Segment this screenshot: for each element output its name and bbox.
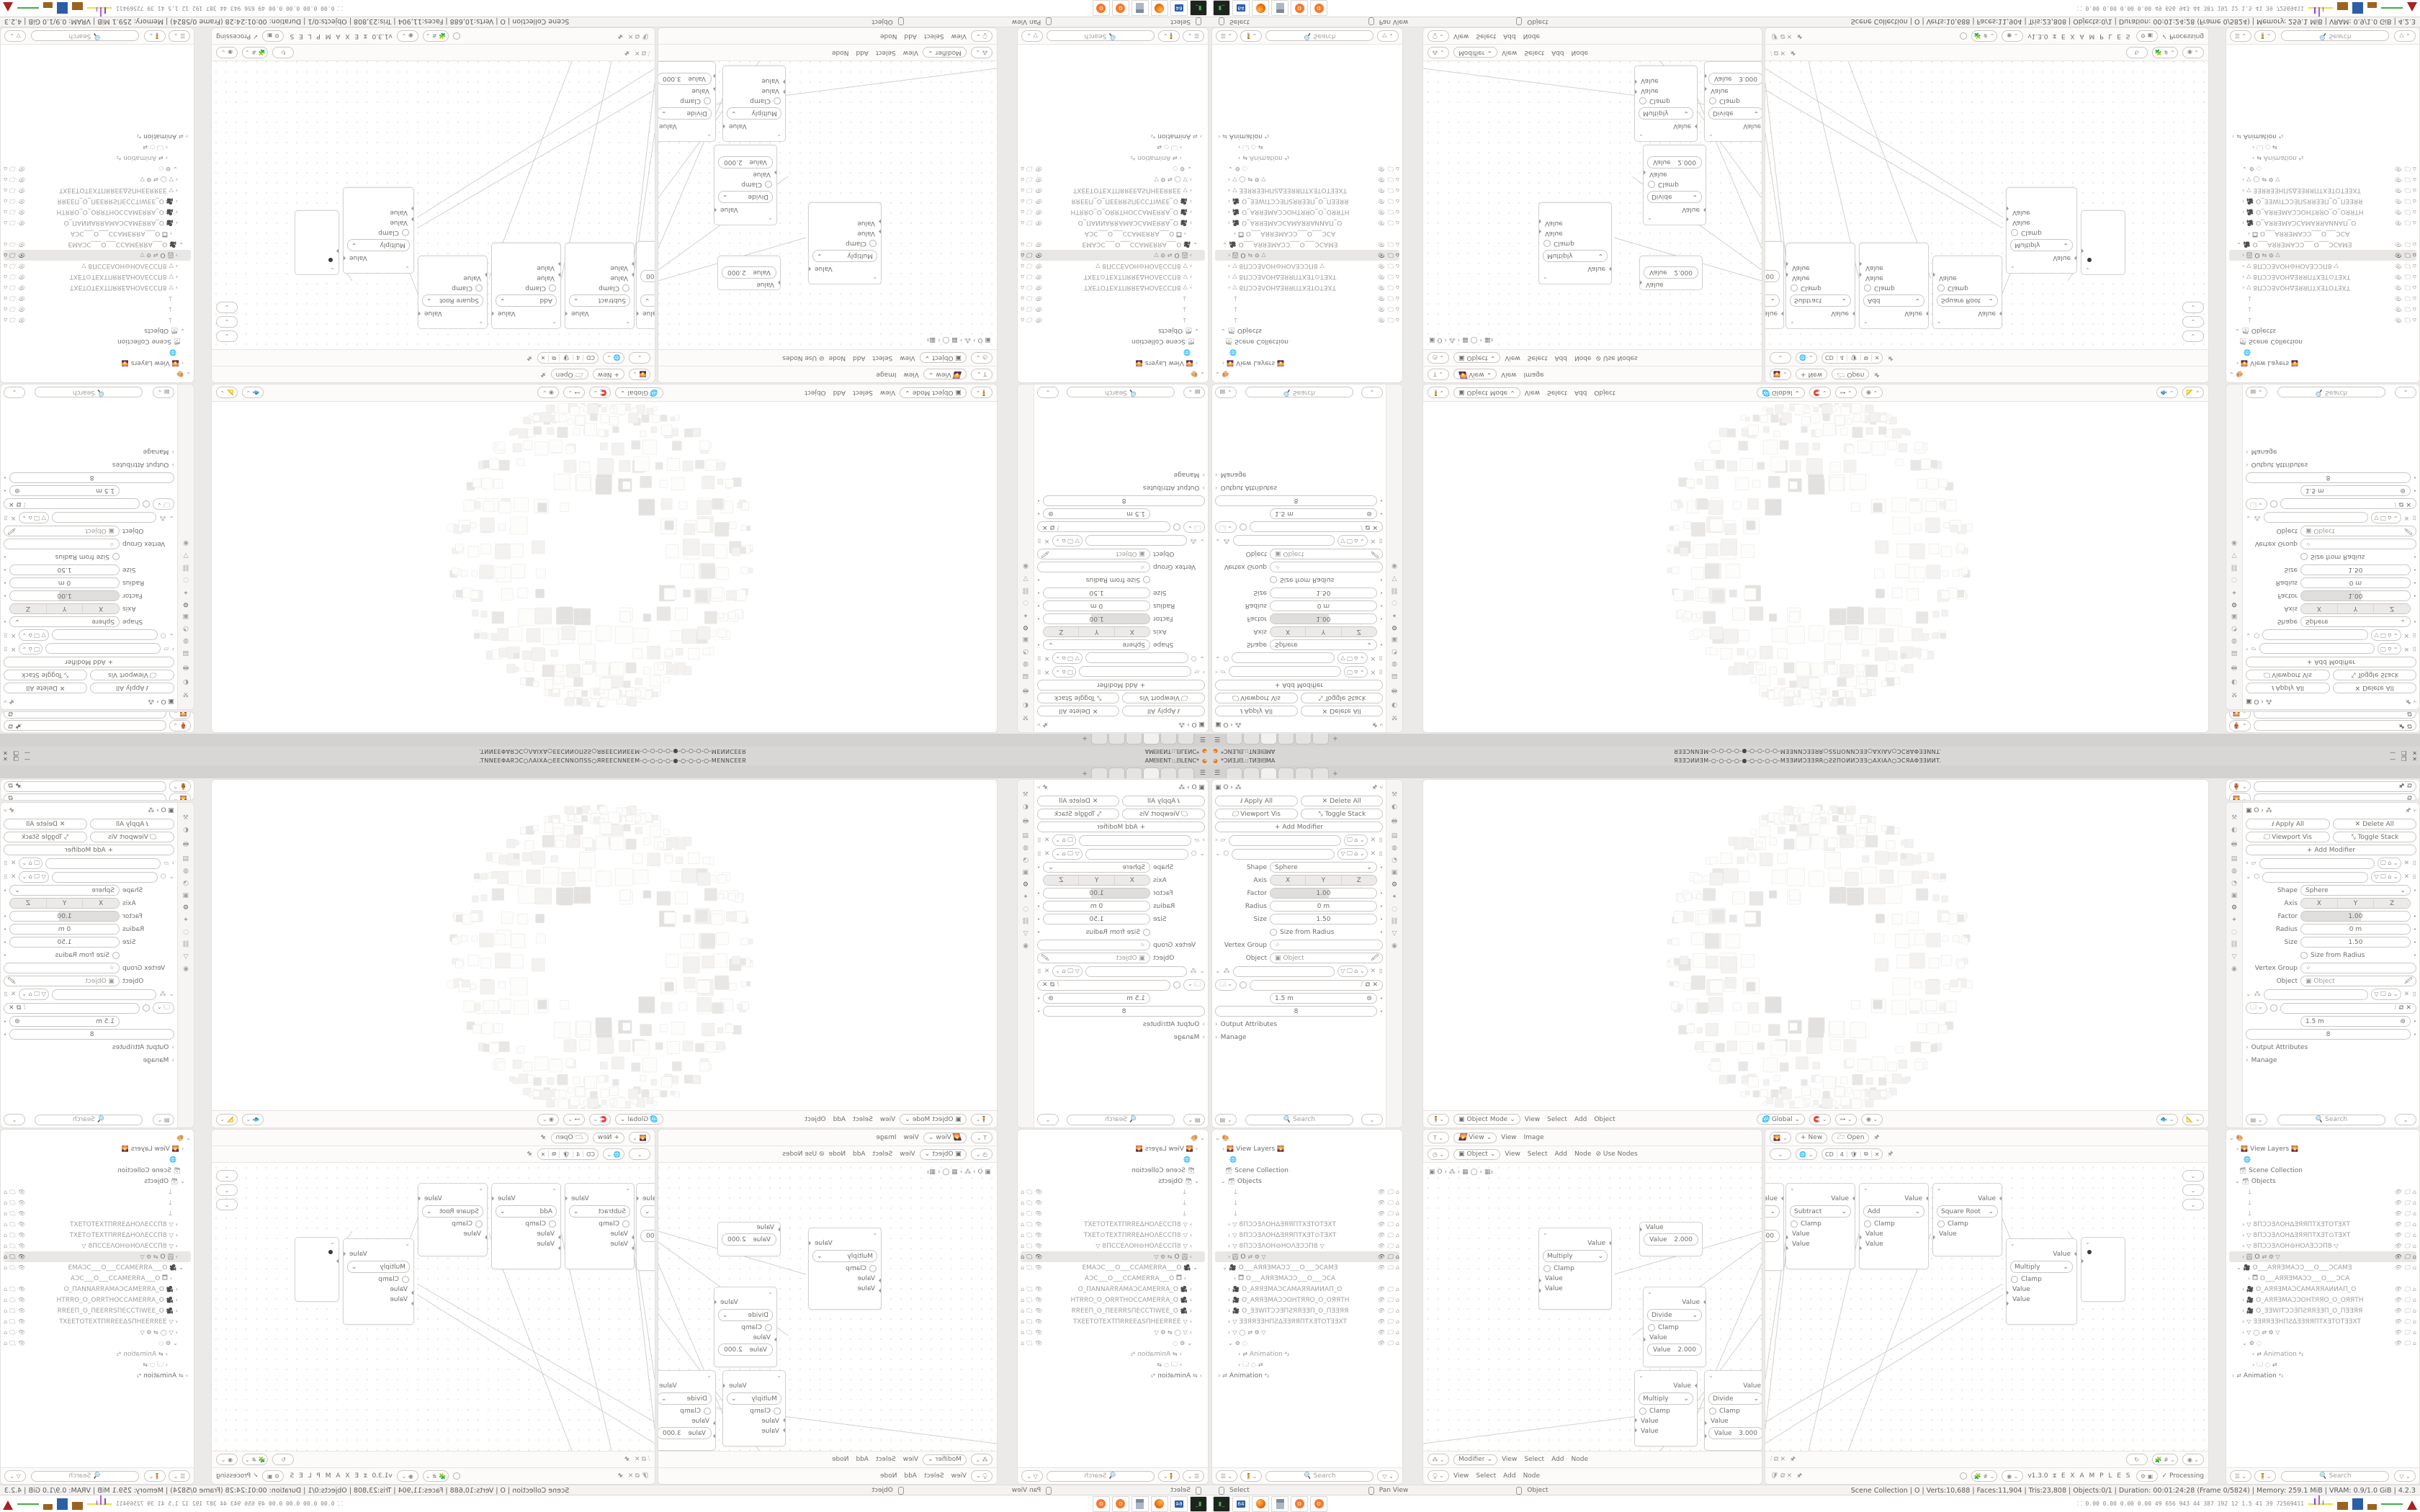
value-field[interactable]: Value2.000	[722, 266, 776, 279]
camera-item[interactable]: O_AЯЯƎMAϽCAMAЯЯAͶͶAП_O	[64, 220, 164, 227]
image-name-field[interactable]: ⧉	[2254, 793, 2416, 801]
editor-type-button[interactable]: ⧬ ⌄	[971, 1470, 992, 1482]
collapse-button[interactable]: ⌄	[629, 1148, 650, 1160]
eyedropper-icon[interactable]: 🖉	[1042, 953, 1049, 964]
math-node-partial[interactable]: ⌄ Value ⌄ Clamp Value1.00	[1765, 241, 1784, 329]
animate-dot[interactable]: •	[4, 953, 6, 958]
remove-modifier-button[interactable]: ✕	[11, 873, 17, 881]
operation-select[interactable]: Subtract⌄	[1790, 1205, 1851, 1218]
math-node-multiply[interactable]: ⌄ Value Multiply⌄ Clamp Value Value	[722, 66, 786, 142]
viewport-vis-button[interactable]: 🖵Viewport Vis	[91, 832, 175, 842]
camera-data-item[interactable]: O___AЯЯƎMAϽƆ___O___ϽCA	[1085, 230, 1174, 238]
node-tree-browse[interactable]: 🗔 ⌄	[1215, 521, 1237, 533]
remove-modifier-button[interactable]: ✕	[1371, 837, 1376, 844]
node-tree-browse[interactable]: 🗔 ⌄	[2246, 498, 2267, 510]
math-node-add[interactable]: ⌄ Value Add⌄ Clamp Value Value	[1859, 243, 1929, 329]
filter-button[interactable]: ▽ ⌄	[2394, 1470, 2416, 1482]
add-modifier-button[interactable]: +Add Modifier	[2246, 845, 2416, 855]
object-field[interactable]: ▣ Object 🖉	[1037, 549, 1150, 559]
filter-button[interactable]: ▽ ⌄	[1377, 30, 1399, 42]
object-item[interactable]: ƎƎЯЯƎƎHПƧΔƎƎЯЯПTXƎTOTƎƎXT	[59, 187, 167, 194]
editor-type-button[interactable]: ⁂ ⌄	[1428, 47, 1449, 58]
objects-collection-item[interactable]: Objects	[2251, 328, 2276, 335]
operation-select[interactable]: Add⌄	[496, 1205, 557, 1218]
filter-owner-button[interactable]: 🧍⌄	[1158, 1470, 1180, 1482]
close-icon[interactable]: ✕	[1872, 355, 1883, 361]
modifier-display-toggles[interactable]: ▽ 🖵 ⌂ ⌄	[19, 989, 48, 1000]
pin-icon[interactable]: 🖈	[1873, 1132, 1879, 1143]
animation-item[interactable]: Animation	[1137, 1351, 1170, 1358]
animate-dot[interactable]: •	[1380, 865, 1383, 870]
properties-tab-strip[interactable]: ⚒◐🖶 ▤◍◔ ▣⚙ ✦◌ ⛓▽◉	[177, 803, 194, 1128]
overlays-toggle[interactable]: ◉ ⌄	[537, 387, 559, 399]
operation-select[interactable]: Subtract⌄	[1790, 294, 1851, 307]
animate-dot[interactable]: •	[2414, 619, 2416, 625]
camera-item[interactable]: O_ƎƎWITϽƆƎПƧЯЯƎƎП_O_ПƎƎЯЯ	[1242, 198, 1348, 205]
texture-browse-button[interactable]: 🏺 ⌄	[2229, 780, 2251, 792]
window-titlebar[interactable]: ◕ *ϽͶƎ⅃ᗺ.::TͶƎIᗺMA ЯƎƎϽͶИƎM-○-○-○-○-●-○-…	[0, 746, 1210, 756]
filter-button[interactable]: ▽ ⌄	[1021, 1470, 1043, 1482]
operation-select[interactable]: Divide⌄	[1708, 107, 1762, 120]
workspace-tab-active[interactable]	[1260, 768, 1277, 778]
node-tree-datablock[interactable]: CD 4 🛡 ⧉ ✕	[1821, 352, 1883, 364]
modifier-name-field[interactable]	[1229, 835, 1341, 846]
filter-button[interactable]: ▽ ⌄	[4, 30, 26, 42]
filter-owner-button[interactable]: 🧍⌄	[1158, 30, 1180, 42]
object-item[interactable]: 8ПϽƆƎΛOHΔƎЯЯПTXƎTOTƎXT	[1084, 1221, 1181, 1228]
selected-object-item[interactable]: O	[1175, 1254, 1180, 1261]
eyedropper-icon[interactable]: 🖉	[1371, 549, 1378, 560]
factor-slider[interactable]: 1.00	[1043, 613, 1150, 624]
examples-label[interactable]: E X A M P L E S	[2061, 32, 2132, 40]
drag-handle-icon[interactable]: ⠿	[1379, 837, 1383, 844]
object-field[interactable]: ▣ Object 🖉	[4, 526, 120, 536]
properties-search-input[interactable]: 🔍Search	[2277, 1115, 2385, 1125]
pin-icon[interactable]: 🖈 ⑂	[4, 696, 15, 707]
editor-type-button[interactable]: T ⌄	[971, 1132, 992, 1143]
camera-item[interactable]: O___AЯЯƎMAϽƆ___O___ϽCAMƎ	[2253, 1264, 2352, 1272]
axis-toggle[interactable]: XYZ	[2300, 898, 2411, 909]
operation-select[interactable]: Square Root⌄	[1937, 1205, 1998, 1218]
view-layers-item[interactable]: View Layers	[2250, 360, 2289, 367]
geometry-node-editor[interactable]: 🌄 ⌄ +New 🗁Open 🖈 ⌄ 🌐 ⌄ CD 4 🛡 ⧉ ✕ 🖈	[1765, 27, 2209, 383]
remove-modifier-button[interactable]: ✕	[11, 860, 17, 867]
math-node-partial[interactable]: Value Value2.000	[717, 256, 781, 290]
animate-dot[interactable]: •	[1037, 498, 1040, 504]
save-app-icon[interactable]: 64	[1232, 1496, 1250, 1512]
axis-toggle[interactable]: XYZ	[1043, 875, 1150, 886]
operation-select[interactable]: Multiply⌄	[727, 1392, 781, 1405]
object-item[interactable]: 8ПϽƆƎΛOHΔƎЯЯПTXƎT⊙TƎXT	[2253, 1232, 2350, 1239]
modifier-display-toggles[interactable]: ▽ 🖵 ⌂ ⌄	[1337, 848, 1367, 860]
node-canvas[interactable]: ⌄ Value ⌄ Clamp Value1.00 ⌄ Value Subtra…	[1765, 1163, 2208, 1451]
node-canvas[interactable]: ⌄ Value ⌄ Clamp Value1.00 ⌄ Value Subtra…	[212, 1163, 655, 1451]
math-node-divide[interactable]: ⌄ Value Divide⌄ Clamp Value Value2.000	[1643, 145, 1706, 225]
operation-select[interactable]: Add⌄	[1863, 1205, 1924, 1218]
texture-name-field[interactable]: 🖈⧉	[2254, 781, 2416, 792]
size-field[interactable]: 1.50	[2300, 937, 2411, 948]
delete-all-button[interactable]: ✕Delete All	[4, 819, 88, 829]
modifier-display-toggles[interactable]: 🖵 ⌂ ⌄	[1052, 666, 1076, 678]
animate-dot[interactable]: •	[1037, 1009, 1040, 1014]
size-from-radius-checkbox[interactable]	[2300, 554, 2308, 561]
snap-toggle[interactable]: 🧲 ⌄	[589, 387, 611, 399]
eyedropper-icon[interactable]: 🖉	[2404, 526, 2411, 537]
radius-field[interactable]: 0 m	[1270, 901, 1377, 912]
node-tree-datablock[interactable]: CD 4 🛡 ⧉ ✕	[537, 352, 599, 364]
operation-select[interactable]: ⌄	[640, 1205, 655, 1218]
texture-browse-button[interactable]: 🏺 ⌄	[2229, 720, 2251, 732]
pin-icon[interactable]: 🖈	[1796, 30, 1802, 42]
size-from-radius-checkbox[interactable]	[112, 952, 120, 959]
properties-tab-strip[interactable]: ⚒◐🖶 ▤◍◔ ▣⚙ ✦◌ ⛓▽◉	[2226, 803, 2243, 1128]
view-menu[interactable]: View	[1525, 1116, 1540, 1123]
pin-icon[interactable]: 🖈 ⑂	[4, 805, 15, 816]
animate-dot[interactable]: •	[1380, 511, 1383, 517]
selected-object-item[interactable]: O	[161, 1254, 166, 1261]
modifier-display-toggles[interactable]: 🖵 ⌂ ⌄	[19, 643, 42, 654]
factor-slider[interactable]: 1.00	[9, 590, 120, 601]
objects-collection-item[interactable]: Objects	[1237, 1178, 1262, 1185]
collapse-arrow-icon[interactable]: ⌄	[2246, 514, 2251, 521]
clamp-checkbox[interactable]	[1543, 1265, 1551, 1272]
copy-icon[interactable]: ⧉	[1365, 981, 1369, 989]
workspace-tab[interactable]	[1312, 768, 1329, 778]
remove-modifier-button[interactable]: ✕	[1044, 537, 1050, 544]
vertex-group-field[interactable]: ⁘	[2300, 963, 2416, 973]
node-menu[interactable]: Node	[1574, 1151, 1592, 1158]
add-menu[interactable]: Add	[1574, 1116, 1587, 1123]
camera-data-item[interactable]: O___AЯЯƎMAϽƆ___O___ϽCA	[1085, 1275, 1174, 1282]
animation-root-item[interactable]: Animation	[1157, 1372, 1191, 1380]
size-field[interactable]: 1.50	[9, 937, 120, 948]
overlay-button[interactable]: ◉ ⌄	[2182, 1454, 2204, 1465]
image-name-field[interactable]: ⧉	[4, 793, 166, 801]
distance-field[interactable]: 1.5 m⊜	[9, 1016, 120, 1027]
math-node-multiply[interactable]: ⌄ Value Multiply⌄ Clamp Value Value	[1634, 1370, 1698, 1446]
animation-root-item[interactable]: Animation	[2244, 133, 2277, 140]
collapse-arrow-icon[interactable]: ⌄	[1199, 968, 1205, 975]
editor-type-button[interactable]: 🧍⌄	[971, 1114, 992, 1125]
modifier-display-toggles[interactable]: ▽ 🖵 ⌂ ⌄	[2371, 871, 2401, 883]
shape-select[interactable]: Sphere⌄	[1043, 639, 1150, 650]
value-field[interactable]: Value1.00	[1765, 270, 1780, 282]
add-modifier-button[interactable]: +Add Modifier	[1037, 822, 1205, 832]
operation-select[interactable]: Square Root⌄	[1937, 294, 1998, 307]
object-field[interactable]: ▣ Object 🖉	[1037, 953, 1150, 963]
pin-icon[interactable]: 🖈 ⑂	[1037, 719, 1049, 730]
clamp-checkbox[interactable]	[1543, 240, 1551, 247]
filter-button[interactable]: ▽ ⌄	[1021, 30, 1043, 42]
editor-type-button[interactable]: T ⌄	[1428, 369, 1449, 380]
shape-select[interactable]: Sphere⌄	[2300, 616, 2411, 627]
math-node-subtract[interactable]: ⌄ Value Subtract⌄ Clamp Value Value	[1785, 1183, 1855, 1269]
animation-item[interactable]: Animation	[123, 1351, 156, 1358]
axis-toggle[interactable]: XYZ	[2300, 603, 2411, 614]
math-node-square-root[interactable]: ⌄ Value Square Root⌄ Clamp Value	[1932, 256, 2002, 329]
expand-arrow-icon[interactable]: ›	[1202, 668, 1205, 675]
gizmo-button[interactable]: 📐 ⌄	[216, 1114, 238, 1125]
save-app-icon[interactable]: 64	[1170, 1, 1188, 17]
node-canvas[interactable]: ▣ O › ⁂ › ▦ ◯ › ▦₃ ⌄ Value Multiply⌄ Cla…	[1423, 61, 1762, 349]
animate-dot[interactable]: •	[2414, 554, 2416, 560]
view-menu[interactable]: View	[1501, 371, 1516, 378]
clamp-checkbox[interactable]	[475, 284, 483, 292]
collapse-arrow-icon[interactable]: ⌄	[169, 631, 174, 639]
drag-handle-icon[interactable]: ⠿	[1037, 837, 1041, 844]
collapse-arrow-icon[interactable]: ⌄	[1215, 968, 1221, 975]
clamp-checkbox[interactable]	[1864, 284, 1871, 292]
collapse-arrow-icon[interactable]: ⌄	[169, 991, 174, 998]
axis-toggle[interactable]: XYZ	[1043, 626, 1150, 637]
scene-collection-item[interactable]: Scene Collection	[117, 1167, 171, 1174]
image-browse-button[interactable]: 🌄 ⌄	[629, 1132, 650, 1143]
snap-node-button[interactable]: 🧩 # ⌄	[423, 30, 449, 42]
objects-collection-item[interactable]: Objects	[144, 1178, 169, 1185]
window-titlebar[interactable]: ◕ *ϽͶƎ⅃ᗺ.::TͶƎIᗺMA ЯƎƎϽͶИƎM-○-○-○-○-●-○-…	[0, 756, 1210, 766]
operation-select[interactable]: ⌄	[1765, 294, 1780, 307]
add-menu[interactable]: Add	[853, 1151, 865, 1158]
image-mode-select[interactable]: 🌄View⌄	[923, 369, 967, 380]
new-image-button[interactable]: +New	[593, 369, 624, 380]
world-browse-button[interactable]: 🌐 ⌄	[603, 352, 624, 364]
node-tree-field[interactable]: ⫶⧉✕	[4, 1003, 140, 1014]
toggle-stack-button[interactable]: ⤡Toggle Stack	[1301, 693, 1384, 703]
expand-arrow-icon[interactable]: ›	[1202, 837, 1205, 844]
editor-type-button[interactable]: ⁂ ⌄	[971, 47, 992, 58]
node-tree-field[interactable]: ⫶⧉✕	[1250, 522, 1383, 533]
outliner-search-input[interactable]: 🔍Search	[2281, 31, 2389, 42]
toggle-stack-button[interactable]: ⤡Toggle Stack	[1301, 809, 1384, 819]
scene-collection-item[interactable]: Scene Collection	[1234, 338, 1289, 346]
modifier-name-field[interactable]	[52, 872, 158, 883]
operation-select[interactable]: Divide⌄	[1708, 1392, 1762, 1405]
proportional-edit-toggle[interactable]: ⊶ ⌄	[1835, 387, 1857, 399]
operation-select[interactable]: Multiply⌄	[727, 107, 781, 120]
camera-item[interactable]: O_AЯЯƎMAϽƆOHTЯЯO_O_OЯЯTH	[56, 209, 163, 216]
axis-toggle[interactable]: XYZ	[1270, 626, 1377, 637]
workspace-tab[interactable]	[1178, 768, 1194, 778]
object-item[interactable]: 8ПϽƆƎΛOHΔƎЯЯПTXƎTOTƎXT	[70, 1221, 167, 1228]
close-icon[interactable]: ✕	[1372, 523, 1378, 531]
modifier-name-field[interactable]	[2264, 513, 2369, 523]
filter-owner-button[interactable]: 🧍⌄	[2254, 1470, 2276, 1482]
clamp-checkbox[interactable]	[402, 1276, 409, 1283]
view-menu[interactable]: View	[904, 1134, 919, 1141]
pin-icon[interactable]: 🖈	[1790, 47, 1796, 58]
node-tree-browse[interactable]: 🗔 ⌄	[153, 1002, 174, 1014]
radius-field[interactable]: 0 m	[2300, 924, 2411, 935]
select-menu[interactable]: Select	[1528, 1151, 1548, 1158]
blender-app-icon[interactable]: ʘ	[1291, 1, 1308, 17]
factor-slider[interactable]: 1.00	[1270, 613, 1377, 624]
animate-dot[interactable]: •	[4, 1019, 6, 1025]
minimize-button[interactable]: —	[2390, 750, 2396, 756]
terminal-app-icon[interactable]: ▮_	[1213, 1496, 1230, 1512]
select-menu[interactable]: Select	[1476, 1472, 1496, 1480]
view-menu[interactable]: View	[1505, 1151, 1520, 1158]
collapse-button[interactable]: ⌄	[629, 352, 650, 364]
mode-select[interactable]: ▣Object Mode⌄	[900, 1114, 967, 1125]
size-field[interactable]: 1.50	[2300, 564, 2411, 575]
overlay-button[interactable]: ◉ ⌄	[2002, 1470, 2023, 1482]
node-canvas[interactable]: ⌄ Value ⌄ Clamp Value1.00 ⌄ Value Subtra…	[212, 61, 655, 349]
editor-type-button[interactable]: ⁂ ⌄	[971, 1454, 992, 1465]
maximize-button[interactable]: ❐	[2401, 750, 2406, 756]
close-icon[interactable]: ✕	[538, 1151, 549, 1158]
manage-section[interactable]: Manage	[2251, 449, 2277, 456]
math-node-partial[interactable]: Value Value2.000	[1639, 256, 1703, 290]
remove-modifier-button[interactable]: ✕	[1371, 537, 1376, 544]
object-item[interactable]: 8ПϽƆƎΛOHΔƎЯЯПTXƎT⊙TƎXT	[70, 1232, 167, 1239]
clamp-checkbox[interactable]	[1648, 1324, 1655, 1331]
animation-root-item[interactable]: Animation	[143, 1372, 176, 1380]
pin-icon[interactable]: 🖈	[1887, 1148, 1893, 1160]
animate-dot[interactable]: •	[4, 927, 6, 932]
animation-root-item[interactable]: Animation	[1229, 133, 1263, 140]
camera-item[interactable]: O_AЯЯƎMAϽCAMAЯЯAͶͶAП_O	[1242, 220, 1342, 227]
view-menu[interactable]: View	[951, 1472, 967, 1480]
animation-item[interactable]: Animation	[2264, 1351, 2297, 1358]
animate-dot[interactable]: •	[1037, 616, 1040, 622]
animate-dot[interactable]: •	[1037, 904, 1040, 909]
properties-tab-strip[interactable]: ⚒◐🖶 ▤◍◔ ▣⚙ ✦◌ ⛓▽◉	[1386, 384, 1402, 732]
copy-icon[interactable]: ⧉	[2398, 500, 2403, 508]
object-menu[interactable]: Object	[1594, 1116, 1615, 1123]
radius-field[interactable]: 0 m	[9, 577, 120, 588]
use-nodes-toggle[interactable]: Use Nodes	[1603, 1151, 1638, 1158]
copy-icon[interactable]: ⧉	[1051, 523, 1055, 531]
view-menu[interactable]: View	[903, 49, 918, 56]
count-field[interactable]: 8	[1215, 1006, 1377, 1017]
workspace-tab[interactable]	[1295, 768, 1312, 778]
minimize-button[interactable]: —	[24, 750, 30, 756]
view-menu[interactable]: View	[900, 354, 915, 361]
math-node-subtract[interactable]: ⌄ Value Subtract⌄ Clamp Value Value	[565, 243, 635, 329]
size-from-radius-checkbox[interactable]	[1143, 929, 1150, 936]
options-button[interactable]: ⌄	[2395, 387, 2416, 398]
animation-item[interactable]: Animation	[1250, 155, 1283, 162]
operation-select[interactable]: Divide⌄	[718, 1309, 773, 1321]
modifier-name-field[interactable]	[1085, 966, 1188, 977]
canvas-corner-widgets[interactable]: ⌄ ⌄ ⌄	[2182, 302, 2204, 342]
object-field[interactable]: ▣ Object 🖉	[1270, 953, 1383, 963]
animate-dot[interactable]: •	[4, 888, 6, 894]
overlay-button[interactable]: ◉ ⌄	[216, 47, 238, 58]
math-node-square-root[interactable]: ⌄ Value Square Root⌄ Clamp Value	[418, 256, 488, 329]
collapse-button[interactable]: ⌄	[1770, 352, 1791, 364]
output-attributes-section[interactable]: Output Attributes	[1143, 1021, 1200, 1028]
clamp-checkbox[interactable]	[869, 240, 877, 247]
animate-dot[interactable]: •	[2414, 593, 2416, 599]
object-item[interactable]: 8ПϽƆƎΛOH⊖HOΛƎƆϽП8	[1239, 1243, 1317, 1250]
fake-user-toggle[interactable]	[453, 32, 460, 40]
camera-item[interactable]: O_AЯЯƎMAϽƆOHTЯЯO_O_OЯЯTH	[1070, 209, 1178, 216]
object-menu[interactable]: Object	[1594, 390, 1615, 397]
shield-icon[interactable]: 🛡	[1847, 1151, 1861, 1158]
node-menu[interactable]: Node	[1572, 49, 1589, 56]
outliner-search-input[interactable]: 🔍Search	[1265, 1471, 1373, 1482]
camera-item[interactable]: O_AЯЯƎMAϽCAMAЯЯAͶͶAП_O	[2256, 1286, 2356, 1293]
remove-modifier-button[interactable]: ✕	[2404, 991, 2410, 998]
mode-select[interactable]: ▣Object Mode⌄	[900, 387, 967, 398]
apply-all-button[interactable]: ⭳Apply All	[2246, 683, 2330, 693]
terminal-app-icon[interactable]: ▮_	[1213, 1, 1230, 17]
toggle-stack-button[interactable]: ⤡Toggle Stack	[4, 832, 88, 842]
modifier-name-field[interactable]	[1085, 849, 1188, 860]
copy-icon[interactable]: ⧉	[1861, 1151, 1872, 1158]
object-field[interactable]: ▣ Object 🖉	[2300, 976, 2416, 986]
value-field[interactable]: Value2.000	[1647, 1344, 1702, 1356]
object-item[interactable]: 8ПϽƆƎΛOHΔƎЯЯПTXƎT⊙TƎXT	[1084, 1232, 1181, 1239]
viewport-3d[interactable]: 🧍⌄ ▣Object Mode⌄ View Select Add Object …	[1422, 384, 2209, 733]
viewport-3d[interactable]: 🧍⌄ ▣Object Mode⌄ View Select Add Object …	[211, 779, 998, 1128]
mode-select[interactable]: ▣Object Mode⌄	[1453, 387, 1520, 398]
animate-dot[interactable]: •	[4, 488, 6, 494]
delete-all-button[interactable]: ✕Delete All	[1037, 706, 1120, 716]
workspace-tab-active[interactable]	[1260, 734, 1277, 744]
toggle-stack-button[interactable]: ⤡Toggle Stack	[4, 670, 88, 680]
camera-item[interactable]: O___AЯЯƎMAϽƆ___O___ϽCAMƎ	[2253, 241, 2352, 248]
overlay-button[interactable]: ◉ ⌄	[2182, 47, 2204, 58]
blender-app-icon[interactable]: ʘ	[1093, 1, 1110, 17]
vertex-group-field[interactable]: ⁘	[4, 539, 120, 549]
camera-item[interactable]: O_AЯЯƎMAϽƆOHTЯЯO_O_OЯЯTH	[1242, 209, 1349, 216]
node-tree-browse[interactable]: 🗔 ⌄	[1183, 979, 1205, 991]
close-icon[interactable]: ✕	[9, 1004, 14, 1012]
snap-node-button[interactable]: 🧩 # ⌄	[242, 47, 268, 58]
camera-data-item[interactable]: O___AЯЯƎMAϽƆ___O___ϽCA	[2260, 1275, 2349, 1282]
options-button[interactable]: ⌄	[2395, 1114, 2416, 1125]
add-menu[interactable]: Add	[1503, 32, 1515, 40]
math-node-multiply[interactable]: ⌄ Value Multiply⌄ Clamp Value Value	[808, 1228, 882, 1310]
math-node-add[interactable]: ⌄ Value Add⌄ Clamp Value Value	[491, 243, 561, 329]
texture-context-select[interactable]: ▣Object⌄	[920, 1149, 967, 1160]
blender-app-icon[interactable]: ʘ	[1093, 1496, 1110, 1512]
animation-item[interactable]: Animation	[1137, 155, 1170, 162]
object-item[interactable]: ƎƎЯЯƎƎHПƧΔƎƎЯЯПTXƎTOTƎƎXT	[1239, 187, 1347, 194]
outliner-search-input[interactable]: 🔍Search	[1047, 1471, 1155, 1482]
manage-section[interactable]: Manage	[2251, 1057, 2277, 1064]
firefox-app-icon[interactable]	[1151, 1, 1168, 17]
checkmark-icon[interactable]: ⊘	[819, 354, 825, 361]
operation-select[interactable]: Divide⌄	[1647, 1309, 1702, 1321]
expand-arrow-icon[interactable]: ›	[1215, 668, 1218, 675]
object-item[interactable]: ƎƎЯЯƎƎHПƧΔƎƎЯЯПTXƎTOTƎƎXT	[1073, 1318, 1181, 1326]
properties-search-input[interactable]: 🔍Search	[1245, 1115, 1353, 1125]
viewport-vis-button[interactable]: 🖵Viewport Vis	[2246, 670, 2330, 680]
value-field[interactable]: Value1.00	[1765, 1230, 1780, 1242]
properties-search-input[interactable]: 🔍Search	[1067, 387, 1175, 398]
image-browse-button[interactable]: 🌄 ⌄	[1770, 369, 1791, 380]
scene-collection-item[interactable]: Scene Collection	[1234, 1167, 1289, 1174]
filter-owner-button[interactable]: 🧍⌄	[144, 1470, 166, 1482]
display-mode-button[interactable]: ☰ ⌄	[1183, 30, 1204, 42]
operation-select[interactable]: ⌄	[1765, 1205, 1780, 1218]
texture-node-editor[interactable]: T ⌄ 🌄View⌄ View Image ◷ ⌄ ▣Object⌄ View …	[1422, 27, 1762, 383]
operation-select[interactable]: Multiply⌄	[2010, 1261, 2073, 1273]
clamp-checkbox[interactable]	[1648, 181, 1655, 188]
clamp-checkbox[interactable]	[765, 181, 772, 188]
maximize-button[interactable]: ❐	[14, 756, 19, 762]
modifier-display-toggles[interactable]: 🖵 ⌂ ⌄	[1344, 666, 1368, 678]
expand-arrow-icon[interactable]: ›	[1215, 837, 1218, 844]
animate-dot[interactable]: •	[4, 1032, 6, 1038]
camera-item[interactable]: O___AЯЯƎMAϽƆ___O___ϽCAMƎ	[1083, 1264, 1182, 1272]
workspace-tab[interactable]	[1226, 768, 1242, 778]
output-node-partial[interactable]: ⌄	[295, 210, 339, 275]
select-menu[interactable]: Select	[876, 1456, 896, 1463]
